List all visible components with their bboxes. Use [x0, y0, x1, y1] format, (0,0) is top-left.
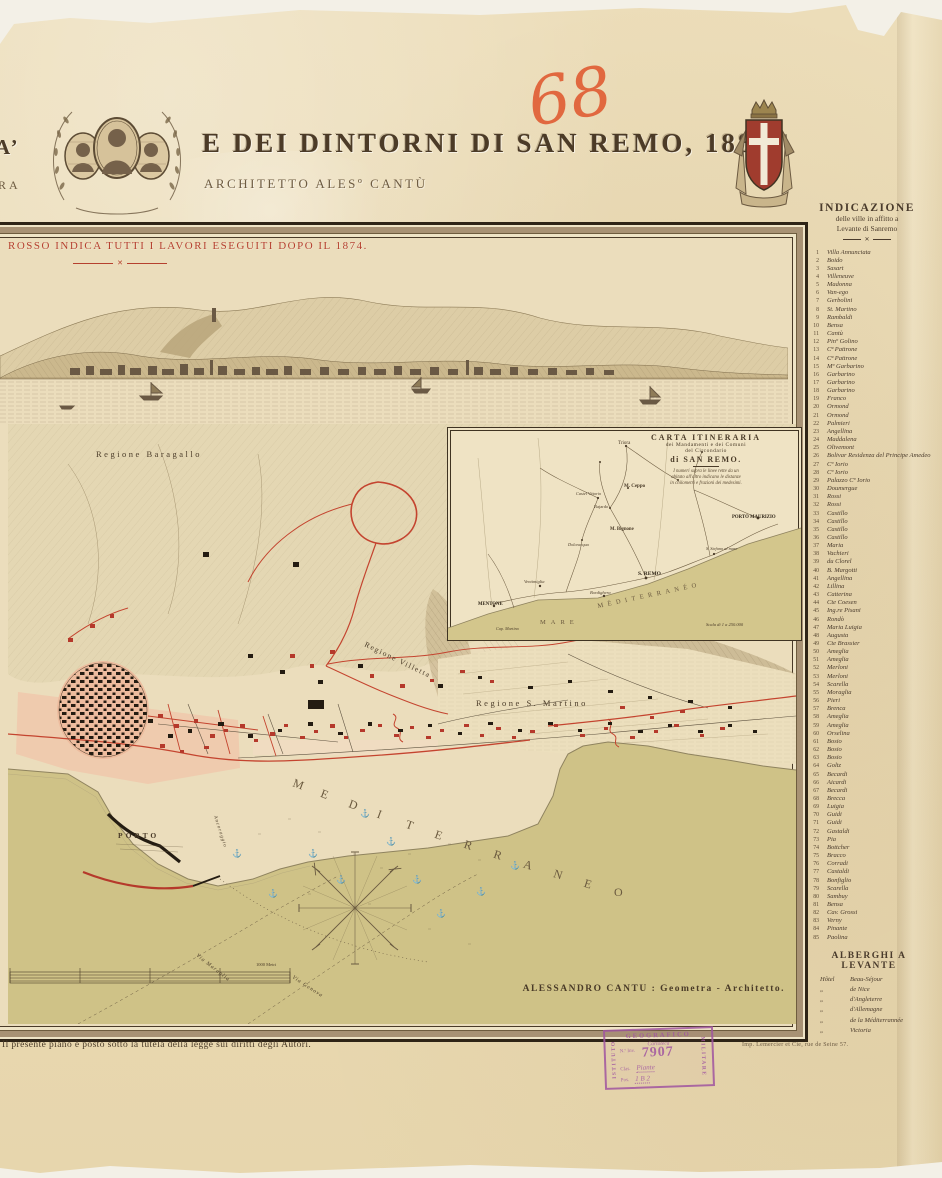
villa-name: Bonfiglio [827, 877, 851, 885]
villa-list-item: 19 Franco [806, 395, 940, 403]
villa-list-item: 32 Rossi [806, 501, 940, 509]
villa-number: 6 [806, 289, 819, 297]
villa-list-item: 61 Bosio [806, 738, 940, 746]
villa-number: 85 [806, 934, 819, 942]
villa-list-item: 43 Catterina [806, 591, 940, 599]
inset-divider [693, 466, 719, 467]
villa-name: Moraglia [827, 689, 852, 697]
villa-name: Ameglia [827, 656, 849, 664]
villa-list-item: 75 Bracco [806, 852, 940, 860]
villa-name: Ameglia [827, 713, 849, 721]
villa-list-item: 22 Palmieri [806, 420, 940, 428]
villa-name: Cte Coesen [827, 599, 857, 607]
hotel-prefix: „ [820, 1016, 850, 1026]
villa-list-item: 67 Becardi [806, 787, 940, 795]
svg-text:M: M [291, 776, 306, 793]
villa-list-item: 51 Ameglia [806, 656, 940, 664]
villa-number: 72 [806, 828, 819, 836]
villa-list-item: 26 Bolivar Residenza del Principe Amedeo [806, 452, 940, 460]
villa-name: Aicardi [827, 779, 846, 787]
villa-list-item: 16 Garbarino [806, 371, 940, 379]
stamp-pos-label: Pos. [621, 1078, 630, 1083]
villa-number: 30 [806, 485, 819, 493]
villa-list-item: 13 Cª Pattrone [806, 346, 940, 354]
villa-number: 21 [806, 412, 819, 420]
stamp-clas-label: Clas. [620, 1067, 630, 1072]
villa-number: 1 [806, 249, 819, 257]
villa-list-item: 34 Castillo [806, 518, 940, 526]
villa-list-item: 18 Garbarino [806, 387, 940, 395]
villa-name: Castillo [827, 510, 848, 518]
villa-list-item: 42 Lillina [806, 583, 940, 591]
copyright-notice: Il presente piano è posto sotto la tutel… [2, 1040, 311, 1050]
villa-name: Cª Pattrone [827, 355, 857, 363]
villa-number: 5 [806, 281, 819, 289]
villa-name: Cª Pattrone [827, 346, 857, 354]
villa-name: Garbarino [827, 371, 855, 379]
villa-list-item: 10 Bensa [806, 322, 940, 330]
villa-name: Cº Iorio [827, 469, 848, 477]
label-regione-s-martino: Regione S. Martino [476, 698, 588, 708]
panorama-sea [0, 377, 788, 423]
villa-name: Brenca [827, 705, 846, 713]
villa-name: Bracco [827, 852, 846, 860]
library-stamp: ISTITUTO MILITARE GEOGRAFICO Cartoteca N… [603, 1026, 715, 1090]
inset-note-line3: in chilometri e frazioni dei medesimi. [616, 481, 796, 487]
villa-name: Angellina [827, 428, 852, 436]
stamp-pos-value: 1 B 2 [635, 1074, 650, 1084]
hotel-list: Hôtel Beau-Séjour „ de Nice „ d'Angleter… [806, 975, 940, 1036]
villa-name: Ing.re Pisani [827, 607, 861, 615]
villa-number: 33 [806, 510, 819, 518]
villa-list-item: 57 Brenca [806, 705, 940, 713]
villa-name: Rondò [827, 616, 844, 624]
villa-list-item: 14 Cª Pattrone [806, 355, 940, 363]
villa-name: Becardi [827, 787, 847, 795]
villa-number: 62 [806, 746, 819, 754]
villa-name: Pia [827, 836, 836, 844]
villa-number: 68 [806, 795, 819, 803]
villa-name: Merloni [827, 664, 848, 672]
handwritten-inventory-number: 68 [522, 51, 618, 141]
map-sheet: A’ RA E DEI DINTORNI DI SAN REMO, 1882 A… [0, 0, 942, 1178]
villa-number: 53 [806, 673, 819, 681]
villa-list-item: 54 Scarella [806, 681, 940, 689]
villa-number: 8 [806, 306, 819, 314]
stamp-clas-value: Piante [636, 1063, 655, 1073]
villa-list-item: 74 Bottcher [806, 844, 940, 852]
sidebar-subtitle-2: Levante di Sanremo [806, 224, 928, 234]
villa-name: Olivemont [827, 444, 854, 452]
villa-list-item: 77 Castaldi [806, 868, 940, 876]
villa-list-item: 63 Bosio [806, 754, 940, 762]
villa-number: 35 [806, 526, 819, 534]
villa-number: 22 [806, 420, 819, 428]
villa-name: Pinante [827, 925, 847, 933]
stamp-inventory-number: 7907 [642, 1044, 675, 1061]
villa-list-item: 78 Bonfiglio [806, 877, 940, 885]
villa-number: 55 [806, 689, 819, 697]
villa-name: Palmieri [827, 420, 850, 428]
villa-name: Cav. Grossi [827, 909, 857, 917]
hotel-list-item: „ de Nice [806, 985, 940, 995]
map-title: E DEI DINTORNI DI SAN REMO, 1882 [202, 128, 730, 159]
villa-name: Bosio [827, 754, 842, 762]
villa-number: 49 [806, 640, 819, 648]
hotel-name: d'Angleterre [850, 995, 882, 1005]
hotel-name: Beau-Séjour [850, 975, 883, 985]
stamp-inv-label: N.º Inv. [620, 1049, 635, 1055]
villa-name: Guidi [827, 811, 842, 819]
villa-number: 73 [806, 836, 819, 844]
villa-name: Villeneuve [827, 273, 854, 281]
villa-number: 20 [806, 403, 819, 411]
villa-number: 41 [806, 575, 819, 583]
villa-list-item: 17 Garbarino [806, 379, 940, 387]
villa-number: 19 [806, 395, 819, 403]
villa-list-item: 2 Boido [806, 257, 940, 265]
villa-list-item: 29 Palazzo Cº Iorio [806, 477, 940, 485]
villa-list-item: 5 Madonna [806, 281, 940, 289]
hotel-prefix: Hôtel [820, 975, 850, 985]
villa-name: Gerbolini [827, 297, 852, 305]
svg-text:I: I [375, 807, 383, 822]
villa-list-item: 12 Pinº Golino [806, 338, 940, 346]
villa-number: 84 [806, 925, 819, 933]
villa-number: 75 [806, 852, 819, 860]
old-town-blocks [59, 663, 147, 757]
villa-name: Mº Garbarino [827, 363, 864, 371]
villa-name: Paolina [827, 934, 848, 942]
villa-list-item: 47 Maria Luigia [806, 624, 940, 632]
map-subtitle: ARCHITETTO ALESº CANTÙ [204, 176, 427, 192]
villa-name: Scarella [827, 681, 848, 689]
villa-list-item: 24 Maddalena [806, 436, 940, 444]
villa-list-item: 35 Castillo [806, 526, 940, 534]
villa-list-item: 46 Rondò [806, 616, 940, 624]
villa-name: Merloni [827, 673, 848, 681]
villa-list-item: 8 St. Martino [806, 306, 940, 314]
villa-number: 36 [806, 534, 819, 542]
villa-list-item: 85 Paolina [806, 934, 940, 942]
villa-name: Cantù [827, 330, 843, 338]
villa-number: 60 [806, 730, 819, 738]
compass-rose-icon [299, 852, 411, 964]
villa-list-item: 71 Guidi [806, 819, 940, 827]
inset-label-porto-maurizio: PORTO MAURIZIO [732, 515, 776, 520]
svg-text:T: T [404, 817, 416, 833]
villa-number: 25 [806, 444, 819, 452]
villa-number: 26 [806, 452, 819, 460]
villa-number: 65 [806, 771, 819, 779]
hotel-prefix: „ [820, 1026, 850, 1036]
villa-number: 79 [806, 885, 819, 893]
villa-number: 16 [806, 371, 819, 379]
villa-list-item: 79 Scarella [806, 885, 940, 893]
inset-label-san-remo: S. REMO [638, 571, 662, 577]
villa-name: Ameglia [827, 722, 849, 730]
villa-list-item: 50 Ameglia [806, 648, 940, 656]
villa-list-item: 83 Verny [806, 917, 940, 925]
villa-number: 71 [806, 819, 819, 827]
villa-number: 13 [806, 346, 819, 354]
villa-list-item: 11 Cantù [806, 330, 940, 338]
stamp-clas-row: Clas.Piante [620, 1063, 655, 1072]
villa-list-item: 20 Ormond [806, 403, 940, 411]
villa-number: 11 [806, 330, 819, 338]
villa-list-item: 15 Mº Garbarino [806, 363, 940, 371]
villa-name: Pinº Golino [827, 338, 858, 346]
villa-number: 12 [806, 338, 819, 346]
villa-list-item: 55 Moraglia [806, 689, 940, 697]
inset-label-capo-martino: Cap. Martino [496, 626, 519, 631]
inset-label-dolceacqua: Dolceacqua [567, 542, 589, 547]
svg-text:⚓: ⚓ [412, 874, 422, 884]
villa-list-item: 41 Angellina [806, 575, 940, 583]
villa-name: Bosio [827, 746, 842, 754]
villa-name: Goltz [827, 762, 841, 770]
inset-title-line4: di SAN REMO. [616, 455, 796, 464]
hotel-list-item: Hôtel Beau-Séjour [806, 975, 940, 985]
villa-number: 61 [806, 738, 819, 746]
villa-name: Brecca [827, 795, 845, 803]
hotel-name: Victoria [850, 1026, 871, 1036]
villa-list-item: 3 Sasart [806, 265, 940, 273]
villa-number: 18 [806, 387, 819, 395]
villa-number: 38 [806, 550, 819, 558]
villa-name: Bolivar Residenza del Principe Amedeo [827, 452, 931, 460]
villa-name: Castillo [827, 518, 848, 526]
savoy-coat-of-arms-icon [732, 96, 796, 208]
villa-name: Ormond [827, 403, 849, 411]
villa-list-item: 38 Vachieri [806, 550, 940, 558]
villa-name: Rambaldi [827, 314, 852, 322]
hotel-prefix: „ [820, 985, 850, 995]
hotel-name: d'Allemagne [850, 1005, 882, 1015]
inset-label-mare: MARE [540, 619, 579, 626]
villa-number: 64 [806, 762, 819, 770]
svg-text:⚓: ⚓ [510, 860, 520, 870]
villa-list-item: 68 Brecca [806, 795, 940, 803]
inset-sea [448, 528, 801, 640]
villa-name: Sambuy [827, 893, 848, 901]
inset-title-line1: CARTA ITINERARIA [616, 433, 796, 442]
villa-name: Castillo [827, 534, 848, 542]
inset-label-scala: Scala di 1 a 250.000 [706, 622, 744, 627]
villa-number: 29 [806, 477, 819, 485]
villa-list-item: 81 Bensa [806, 901, 940, 909]
printer-imprint: Imp. Lemercier et Cie, rue de Seine 57. [742, 1042, 848, 1048]
villa-number: 82 [806, 909, 819, 917]
villa-name: Madonna [827, 281, 852, 289]
villa-name: Villa Annunciata [827, 249, 871, 257]
villa-number: 46 [806, 616, 819, 624]
inset-label-ventimiglia: Ventimiglia [524, 579, 545, 584]
villa-list-item: 53 Merloni [806, 673, 940, 681]
villa-name: Castillo [827, 526, 848, 534]
villa-name: Ameglia [827, 648, 849, 656]
villa-number: 17 [806, 379, 819, 387]
villa-name: Bottcher [827, 844, 849, 852]
sidebar-flourish: ✕ [806, 236, 928, 243]
inset-label-bordighera: Bordighera [590, 590, 611, 595]
villa-list: 1 Villa Annunciata 2 Boido 3 Sasart 4 Vi… [806, 249, 940, 942]
villa-name: Van-ego [827, 289, 848, 297]
villa-name: Rossi [827, 501, 841, 509]
villa-number: 76 [806, 860, 819, 868]
villa-list-item: 39 du Clorel [806, 558, 940, 566]
svg-text:⚓: ⚓ [268, 888, 278, 898]
villa-number: 24 [806, 436, 819, 444]
stamp-pos-row: Pos.1 B 2 [621, 1074, 651, 1083]
villa-number: 42 [806, 583, 819, 591]
villa-list-item: 4 Villeneuve [806, 273, 940, 281]
inset-label-mentone: MENTONE [478, 602, 503, 607]
villa-number: 51 [806, 656, 819, 664]
villa-list-item: 52 Merloni [806, 664, 940, 672]
villa-number: 31 [806, 493, 819, 501]
villa-list-item: 66 Aicardi [806, 779, 940, 787]
villa-number: 48 [806, 632, 819, 640]
villa-number: 63 [806, 754, 819, 762]
villa-list-item: 7 Gerbolini [806, 297, 940, 305]
villa-number: 45 [806, 607, 819, 615]
label-ancoraggio: Ancoraggio [212, 814, 227, 848]
villa-name: Lillina [827, 583, 844, 591]
villa-number: 10 [806, 322, 819, 330]
villa-number: 67 [806, 787, 819, 795]
villa-name: Garbarino [827, 387, 855, 395]
label-porto: PORTO [118, 831, 159, 840]
villa-number: 58 [806, 713, 819, 721]
villa-number: 28 [806, 469, 819, 477]
villa-number: 57 [806, 705, 819, 713]
villa-number: 50 [806, 648, 819, 656]
villa-name: Bensa [827, 322, 843, 330]
villa-name: Sasart [827, 265, 844, 273]
villa-number: 78 [806, 877, 819, 885]
villa-list-item: 25 Olivemont [806, 444, 940, 452]
inset-label-s-stefano: S. Stefano al mare [706, 546, 737, 551]
villa-list-item: 76 Corradi [806, 860, 940, 868]
panorama-engraving [0, 256, 788, 424]
villa-number: 43 [806, 591, 819, 599]
villa-list-item: 82 Cav. Grossi [806, 909, 940, 917]
villa-number: 74 [806, 844, 819, 852]
hotel-name: de la Méditerrannée [850, 1016, 903, 1026]
villa-name: Ormond [827, 412, 849, 420]
villa-name: Augusta [827, 632, 848, 640]
villa-list-item: 69 Luigia [806, 803, 940, 811]
villa-list-item: 80 Sambuy [806, 893, 940, 901]
hotel-list-item: „ d'Angleterre [806, 995, 940, 1005]
villa-list-item: 58 Ameglia [806, 713, 940, 721]
svg-text:⚓: ⚓ [360, 808, 370, 818]
villa-number: 81 [806, 901, 819, 909]
svg-text:E: E [319, 786, 331, 802]
villa-name: Bosio [827, 738, 842, 746]
villa-name: Becardi [827, 771, 847, 779]
villa-list-item: 6 Van-ego [806, 289, 940, 297]
villa-list-item: 70 Guidi [806, 811, 940, 819]
villa-name: Cte Brassier [827, 640, 860, 648]
villa-name: Castaldi [827, 868, 849, 876]
villa-list-item: 64 Goltz [806, 762, 940, 770]
villa-name: Luigia [827, 803, 844, 811]
villa-name: Maria Luigia [827, 624, 862, 632]
villa-name: Orselina [827, 730, 850, 738]
hotel-list-item: „ d'Allemagne [806, 1005, 940, 1015]
villa-number: 44 [806, 599, 819, 607]
villa-number: 47 [806, 624, 819, 632]
villa-list-item: 84 Pinante [806, 925, 940, 933]
sidebar-title: INDICAZIONE [806, 202, 928, 214]
villa-list-item: 37 Maria [806, 542, 940, 550]
villa-number: 3 [806, 265, 819, 273]
hotel-name: de Nice [850, 985, 870, 995]
villa-name: du Clorel [827, 558, 852, 566]
villa-list-item: 65 Becardi [806, 771, 940, 779]
villa-list-item: 73 Pia [806, 836, 940, 844]
hotel-prefix: „ [820, 1005, 850, 1015]
villa-list-item: 45 Ing.re Pisani [806, 607, 940, 615]
svg-text:⚓: ⚓ [476, 886, 486, 896]
villa-number: 40 [806, 567, 819, 575]
svg-text:⚓: ⚓ [436, 908, 446, 918]
villa-number: 27 [806, 461, 819, 469]
villa-name: Doumergue [827, 485, 857, 493]
villa-number: 9 [806, 314, 819, 322]
inset-label-m-bignone: M. Bignone [610, 527, 634, 532]
villa-name: Guidi [827, 819, 842, 827]
villa-list-item: 36 Castillo [806, 534, 940, 542]
villa-name: Franco [827, 395, 846, 403]
villa-list-item: 60 Orselina [806, 730, 940, 738]
villa-list-item: 72 Gastaldi [806, 828, 940, 836]
villa-list-item: 27 Cº Iorio [806, 461, 940, 469]
villa-name: St. Martino [827, 306, 857, 314]
subtitle-fragment-left: RA [0, 178, 21, 193]
villa-number: 56 [806, 697, 819, 705]
label-regione-baragallo: Regione Baragallo [96, 449, 202, 459]
villa-list-item: 48 Augusta [806, 632, 940, 640]
villa-number: 32 [806, 501, 819, 509]
villa-number: 2 [806, 257, 819, 265]
villa-index-sidebar: INDICAZIONE delle ville in affitto a Lev… [806, 202, 940, 1036]
villa-number: 7 [806, 297, 819, 305]
inset-label-bajardo: Bajardo [594, 504, 609, 509]
villa-number: 39 [806, 558, 819, 566]
villa-number: 34 [806, 518, 819, 526]
villa-list-item: 23 Angellina [806, 428, 940, 436]
hotel-list-item: „ Victoria [806, 1026, 940, 1036]
villa-name: Vachieri [827, 550, 849, 558]
villa-name: Boido [827, 257, 843, 265]
title-fragment-left: A’ [0, 135, 20, 160]
svg-text:⚓: ⚓ [232, 848, 242, 858]
villa-number: 83 [806, 917, 819, 925]
villa-list-item: 49 Cte Brassier [806, 640, 940, 648]
legend-red-note: ROSSO INDICA TUTTI I LAVORI ESEGUITI DOP… [8, 240, 368, 252]
inset-label-castel-vittorio: Castel Vittorio [576, 491, 602, 496]
villa-list-item: 40 B. Margotti [806, 567, 940, 575]
villa-name: B. Margotti [827, 567, 857, 575]
villa-list-item: 59 Ameglia [806, 722, 940, 730]
villa-list-item: 30 Doumergue [806, 485, 940, 493]
villa-name: Scarella [827, 885, 848, 893]
inset-itinerary-map: Triora M. Ceppo Castel Vittorio Bajardo … [447, 427, 802, 641]
villa-name: Verny [827, 917, 842, 925]
